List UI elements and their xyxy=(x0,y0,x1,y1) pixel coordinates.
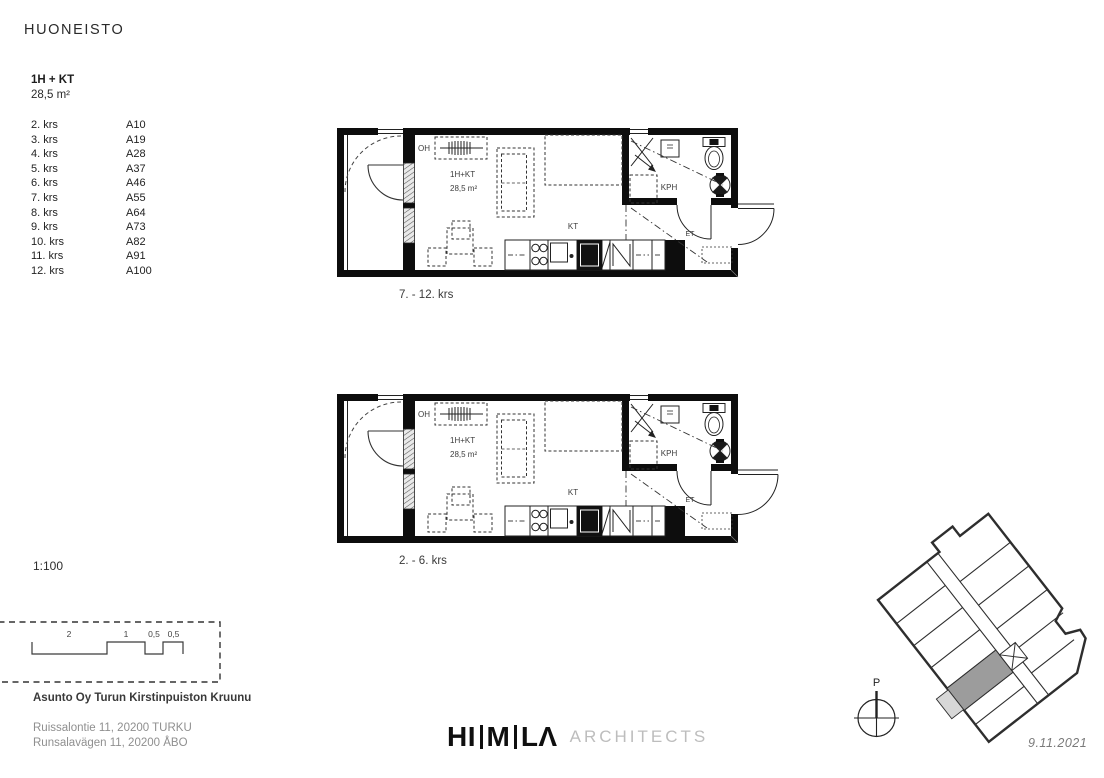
drawing-date: 9.11.2021 xyxy=(1028,736,1087,750)
entrance-door-swing xyxy=(738,209,774,245)
floor-row: 7. krsA55 xyxy=(31,191,152,206)
stove-burner xyxy=(540,244,547,251)
plan-area-label: 28,5 m² xyxy=(450,184,477,193)
balcony-window xyxy=(404,163,415,203)
floor-row: 3. krsA19 xyxy=(31,133,152,148)
floor-row: 2. krsA10 xyxy=(31,118,152,133)
floor-unit-list: 2. krsA10 3. krsA19 4. krsA28 5. krsA37 … xyxy=(31,118,152,279)
entrance-door-swing xyxy=(738,475,778,515)
balcony-door-swing xyxy=(368,431,403,466)
unit-label: A100 xyxy=(126,264,152,279)
fridge-icon xyxy=(613,510,630,532)
room-label-et: ET xyxy=(686,497,696,504)
floor-row: 11. krsA91 xyxy=(31,249,152,264)
floor-row: 6. krsA46 xyxy=(31,176,152,191)
room-label-kph: KPH xyxy=(661,449,678,458)
scale-seg-label: 2 xyxy=(67,629,72,639)
unit-label: A37 xyxy=(126,162,146,177)
logo-letters: HI xyxy=(447,722,476,752)
balcony-door-glazing xyxy=(404,474,415,509)
project-address-fi: Ruissalontie 11, 20200 TURKU xyxy=(33,722,192,734)
dining-table xyxy=(447,228,473,254)
doormat xyxy=(702,513,732,529)
stove-burner xyxy=(532,257,539,264)
room-label-et: ET xyxy=(686,231,696,238)
plan-type-label: 1H+KT xyxy=(450,170,475,179)
balcony-door-swing xyxy=(368,165,403,200)
scale-seg-label: 1 xyxy=(124,629,129,639)
logo-letters: M xyxy=(487,722,511,752)
unit-label: A73 xyxy=(126,220,146,235)
project-address-sv: Runsalavägen 11, 20200 ÅBO xyxy=(33,737,188,749)
page-title: HUONEISTO xyxy=(24,22,124,38)
plan-caption-2-6: 2. - 6. krs xyxy=(399,555,447,567)
floor-label: 4. krs xyxy=(31,147,126,162)
faucet xyxy=(570,520,574,524)
logo-divider xyxy=(514,725,517,749)
balcony-window xyxy=(404,429,415,469)
architect-logo: HI M LΛ ARCHITECTS xyxy=(447,722,708,752)
balcony-door-glazing xyxy=(404,208,415,243)
sink-icon xyxy=(710,439,730,463)
logo-letters: LΛ xyxy=(521,722,558,752)
floor-row: 12. krsA100 xyxy=(31,264,152,279)
room-label-oh: OH xyxy=(418,144,430,153)
chair xyxy=(428,248,446,266)
floor-row: 10. krsA82 xyxy=(31,235,152,250)
chair xyxy=(452,221,470,239)
scale-ratio: 1:100 xyxy=(33,559,63,573)
room-label-kph: KPH xyxy=(661,183,678,192)
unit-label: A91 xyxy=(126,249,146,264)
vent-box xyxy=(661,140,679,157)
project-name: Asunto Oy Turun Kirstinpuiston Kruunu xyxy=(33,692,251,704)
floor-label: 6. krs xyxy=(31,176,126,191)
stove-burner xyxy=(532,510,539,517)
room-label-oh: OH xyxy=(418,410,430,419)
bed-area xyxy=(545,135,622,185)
scale-bar-frame xyxy=(0,622,220,682)
logo-suffix: ARCHITECTS xyxy=(570,727,709,747)
floor-row: 8. krsA64 xyxy=(31,206,152,221)
north-arrow xyxy=(854,691,899,737)
unit-label: A55 xyxy=(126,191,146,206)
site-plan: P xyxy=(853,485,1103,760)
stove-burner xyxy=(540,523,547,530)
plan-type-label: 1H+KT xyxy=(450,436,475,445)
chair xyxy=(428,514,446,532)
bed-area xyxy=(545,401,622,451)
fridge-icon xyxy=(613,244,630,266)
unit-label: A82 xyxy=(126,235,146,250)
unit-label: A46 xyxy=(126,176,146,191)
floor-plan-2-6-krs: OH 1H+KT 28,5 m² KT KPH ET xyxy=(337,394,785,546)
room-label-kt: KT xyxy=(568,488,578,497)
floor-label: 12. krs xyxy=(31,264,126,279)
sink-icon xyxy=(710,173,730,197)
faucet xyxy=(570,254,574,258)
floor-plan-7-12-krs: OH 1H+KT 28,5 m² KT KPH ET xyxy=(337,128,781,280)
north-label: P xyxy=(873,677,880,689)
tv-unit-detail xyxy=(440,407,483,421)
scale-bar-steps xyxy=(32,642,183,654)
room-label-kt: KT xyxy=(568,222,578,231)
scale-seg-label: 0,5 xyxy=(148,629,160,639)
unit-label: A19 xyxy=(126,133,146,148)
sofa xyxy=(497,148,534,217)
floor-label: 10. krs xyxy=(31,235,126,250)
floor-label: 3. krs xyxy=(31,133,126,148)
stove-burner xyxy=(540,257,547,264)
building-outline xyxy=(871,504,1100,742)
dining-table xyxy=(447,494,473,520)
plan-caption-7-12: 7. - 12. krs xyxy=(399,289,453,301)
plan-area-label: 28,5 m² xyxy=(450,450,477,459)
stove-burner xyxy=(532,244,539,251)
floor-label: 8. krs xyxy=(31,206,126,221)
vent-box xyxy=(661,406,679,423)
kitchen-sink xyxy=(551,243,568,262)
floor-label: 9. krs xyxy=(31,220,126,235)
scale-bar: 2 1 0,5 0,5 xyxy=(0,618,240,690)
chair xyxy=(452,487,470,505)
floor-label: 7. krs xyxy=(31,191,126,206)
sofa xyxy=(497,414,534,483)
kitchen-sink xyxy=(551,509,568,528)
doormat xyxy=(702,247,732,263)
floor-label: 11. krs xyxy=(31,249,126,264)
unit-label: A64 xyxy=(126,206,146,221)
floor-row: 9. krsA73 xyxy=(31,220,152,235)
sofa-seat xyxy=(502,154,527,211)
floor-row: 4. krsA28 xyxy=(31,147,152,162)
unit-label: A10 xyxy=(126,118,146,133)
stove-burner xyxy=(540,510,547,517)
floor-row: 5. krsA37 xyxy=(31,162,152,177)
tv-unit-detail xyxy=(440,141,483,155)
scale-seg-label: 0,5 xyxy=(168,629,180,639)
sofa-seat xyxy=(502,420,527,477)
chair xyxy=(474,514,492,532)
toilet-icon xyxy=(703,404,725,436)
apartment-area: 28,5 m² xyxy=(31,89,70,101)
floor-label: 2. krs xyxy=(31,118,126,133)
stove-burner xyxy=(532,523,539,530)
unit-label: A28 xyxy=(126,147,146,162)
apartment-type: 1H + KT xyxy=(31,74,74,86)
floor-label: 5. krs xyxy=(31,162,126,177)
toilet-icon xyxy=(703,138,725,170)
logo-divider xyxy=(480,725,483,749)
chair xyxy=(474,248,492,266)
